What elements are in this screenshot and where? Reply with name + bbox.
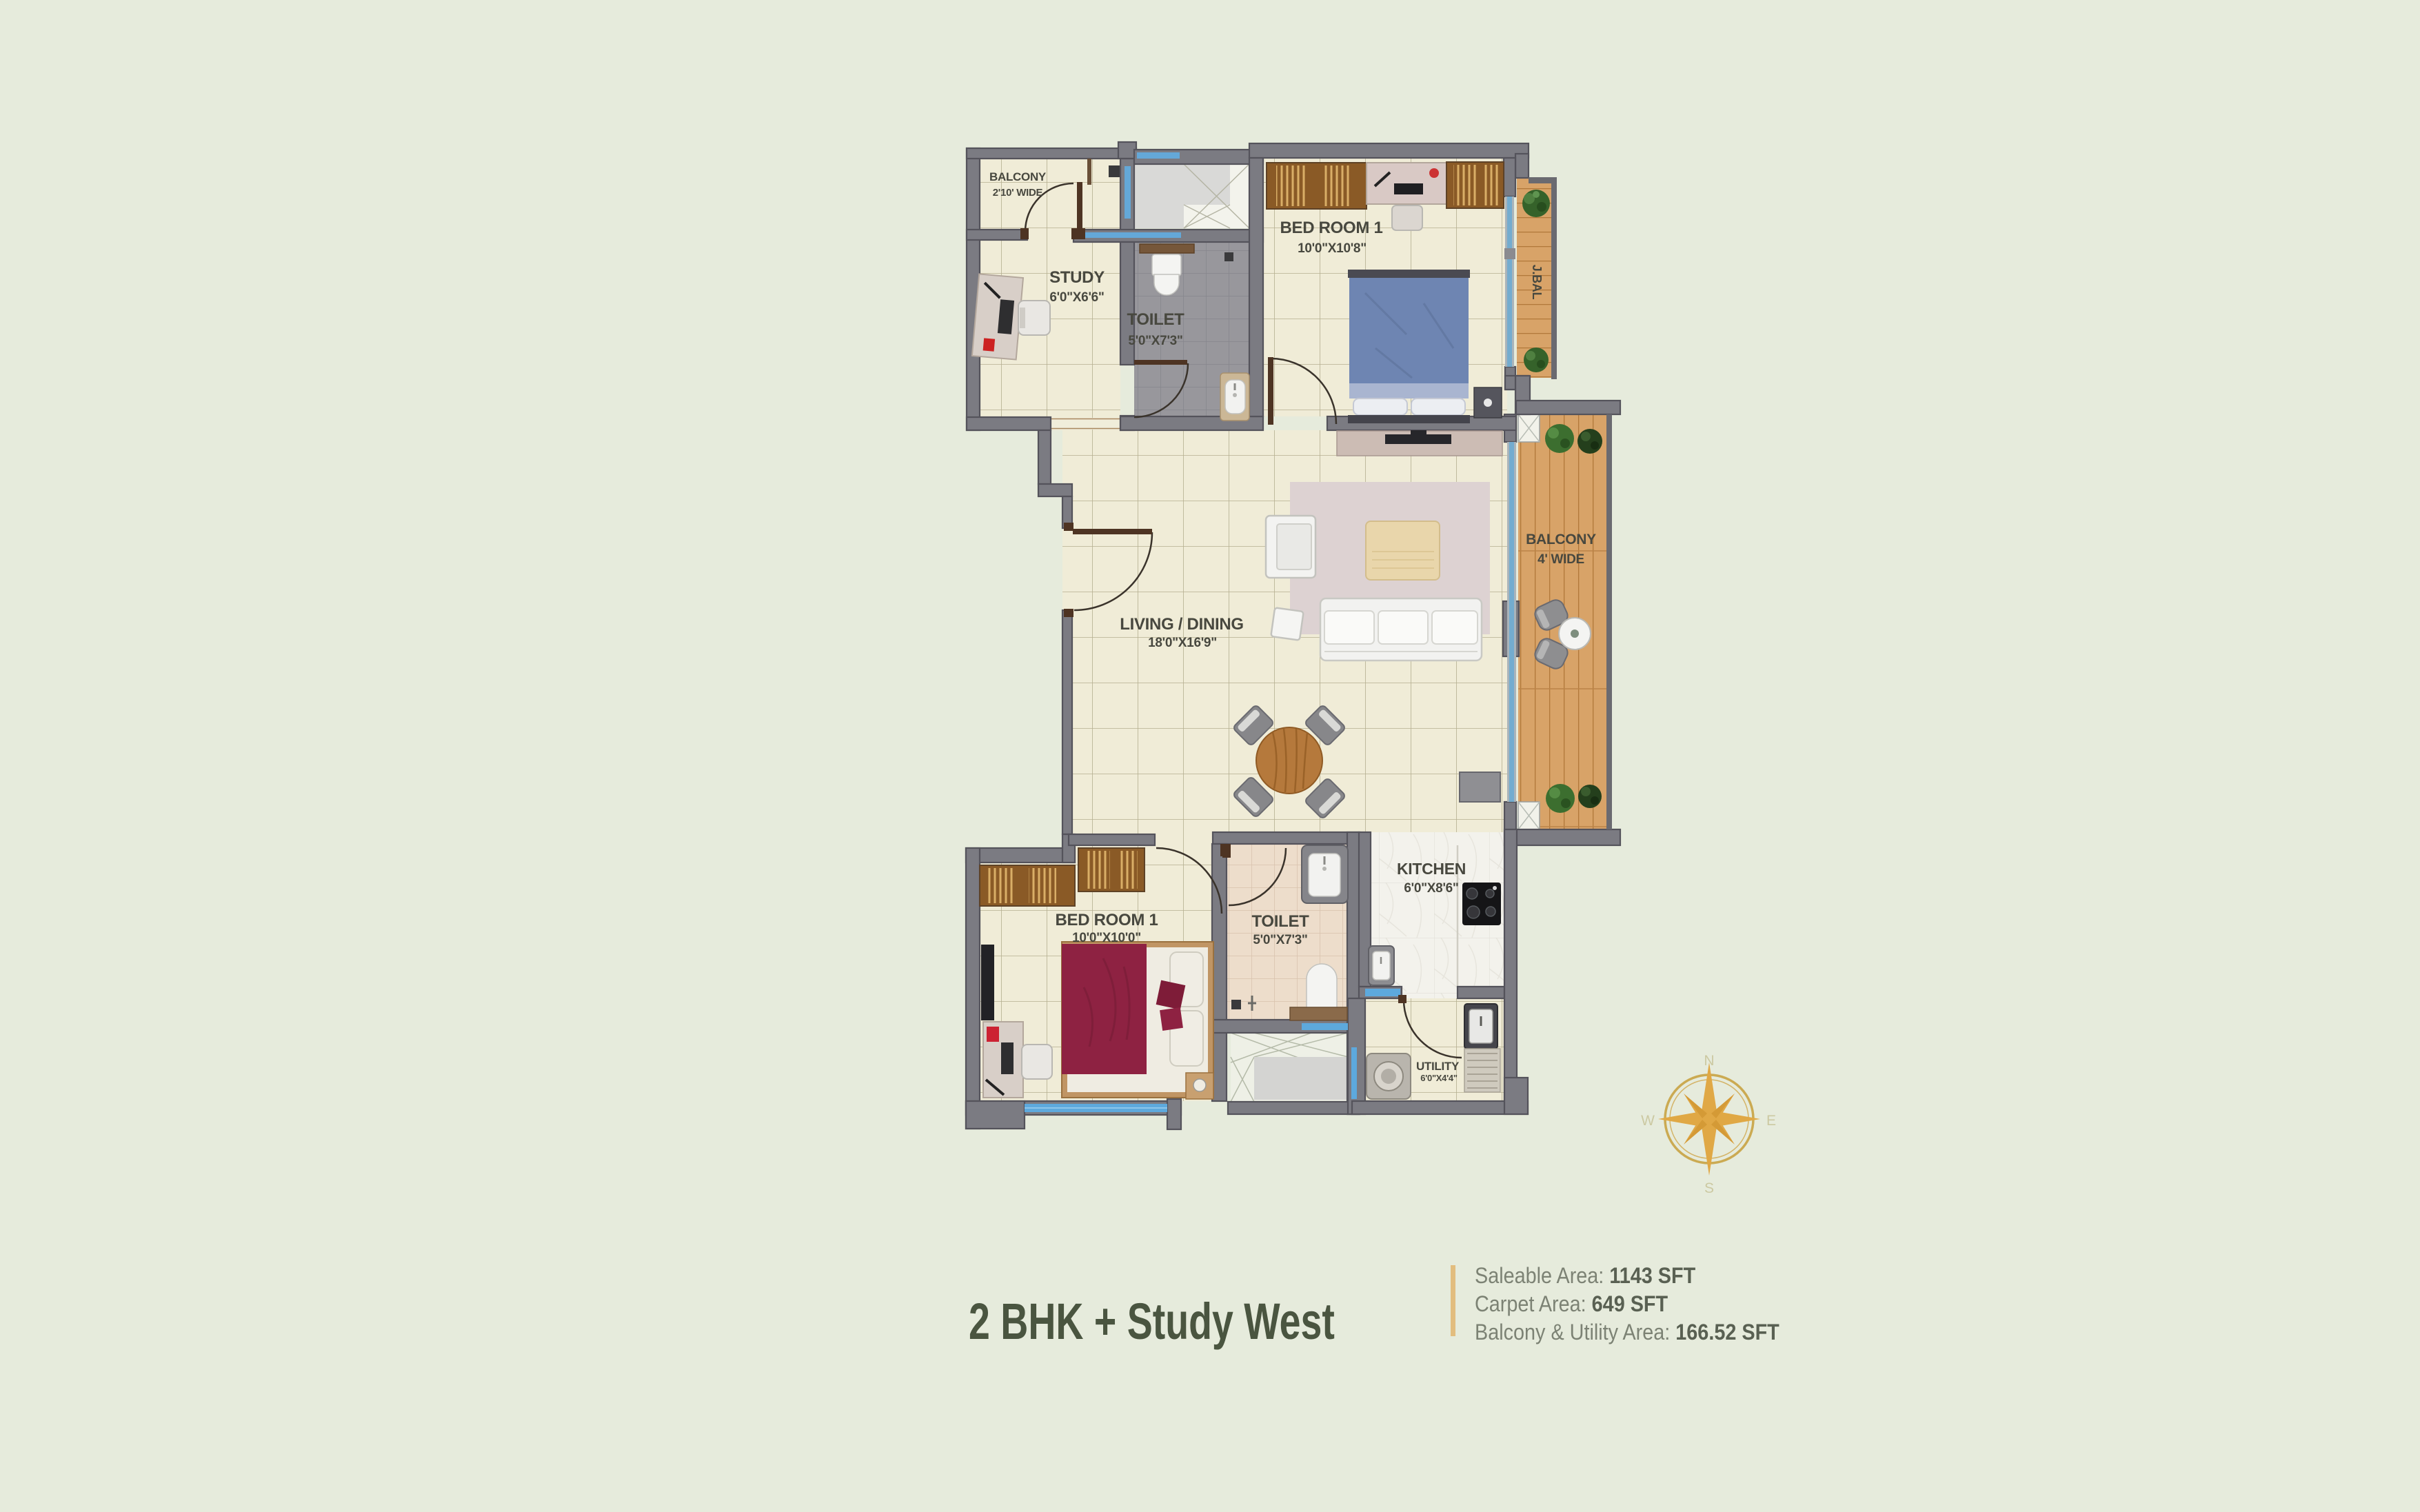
- svg-text:TOILET: TOILET: [1251, 912, 1309, 931]
- svg-text:BED ROOM 1: BED ROOM 1: [1280, 219, 1382, 237]
- svg-text:6'0"X4'4": 6'0"X4'4": [1420, 1073, 1458, 1083]
- svg-text:4' WIDE: 4' WIDE: [1537, 552, 1584, 567]
- svg-text:6'0"X8'6": 6'0"X8'6": [1404, 881, 1458, 896]
- svg-text:W: W: [1641, 1113, 1655, 1129]
- svg-text:10'0"X10'0": 10'0"X10'0": [1072, 931, 1141, 945]
- svg-text:6'0"X6'6": 6'0"X6'6": [1049, 290, 1104, 305]
- svg-text:E: E: [1766, 1113, 1776, 1129]
- svg-text:5'0"X7'3": 5'0"X7'3": [1128, 334, 1182, 348]
- svg-text:LIVING / DINING: LIVING / DINING: [1120, 615, 1244, 634]
- svg-text:2'10' WIDE: 2'10' WIDE: [993, 187, 1043, 199]
- svg-text:STUDY: STUDY: [1049, 268, 1105, 287]
- svg-text:2 BHK + Study West: 2 BHK + Study West: [969, 1293, 1335, 1350]
- svg-text:BALCONY: BALCONY: [1526, 532, 1596, 547]
- svg-text:Saleable Area: 1143 SFT: Saleable Area: 1143 SFT: [1475, 1264, 1696, 1289]
- svg-text:BALCONY: BALCONY: [989, 170, 1047, 183]
- svg-text:Carpet Area: 649 SFT: Carpet Area: 649 SFT: [1475, 1292, 1668, 1317]
- svg-text:TOILET: TOILET: [1127, 310, 1184, 329]
- svg-text:10'0"X10'8": 10'0"X10'8": [1298, 241, 1367, 256]
- svg-text:J.BAL: J.BAL: [1530, 265, 1544, 300]
- svg-text:UTILITY: UTILITY: [1416, 1060, 1460, 1073]
- svg-text:5'0"X7'3": 5'0"X7'3": [1253, 933, 1307, 947]
- svg-text:S: S: [1704, 1180, 1714, 1196]
- svg-text:N: N: [1704, 1053, 1714, 1069]
- svg-text:BED ROOM 1: BED ROOM 1: [1055, 911, 1158, 929]
- svg-text:18'0"X16'9": 18'0"X16'9": [1148, 636, 1217, 650]
- svg-text:Balcony & Utility Area: 166.52: Balcony & Utility Area: 166.52 SFT: [1475, 1320, 1779, 1345]
- svg-text:KITCHEN: KITCHEN: [1397, 860, 1466, 878]
